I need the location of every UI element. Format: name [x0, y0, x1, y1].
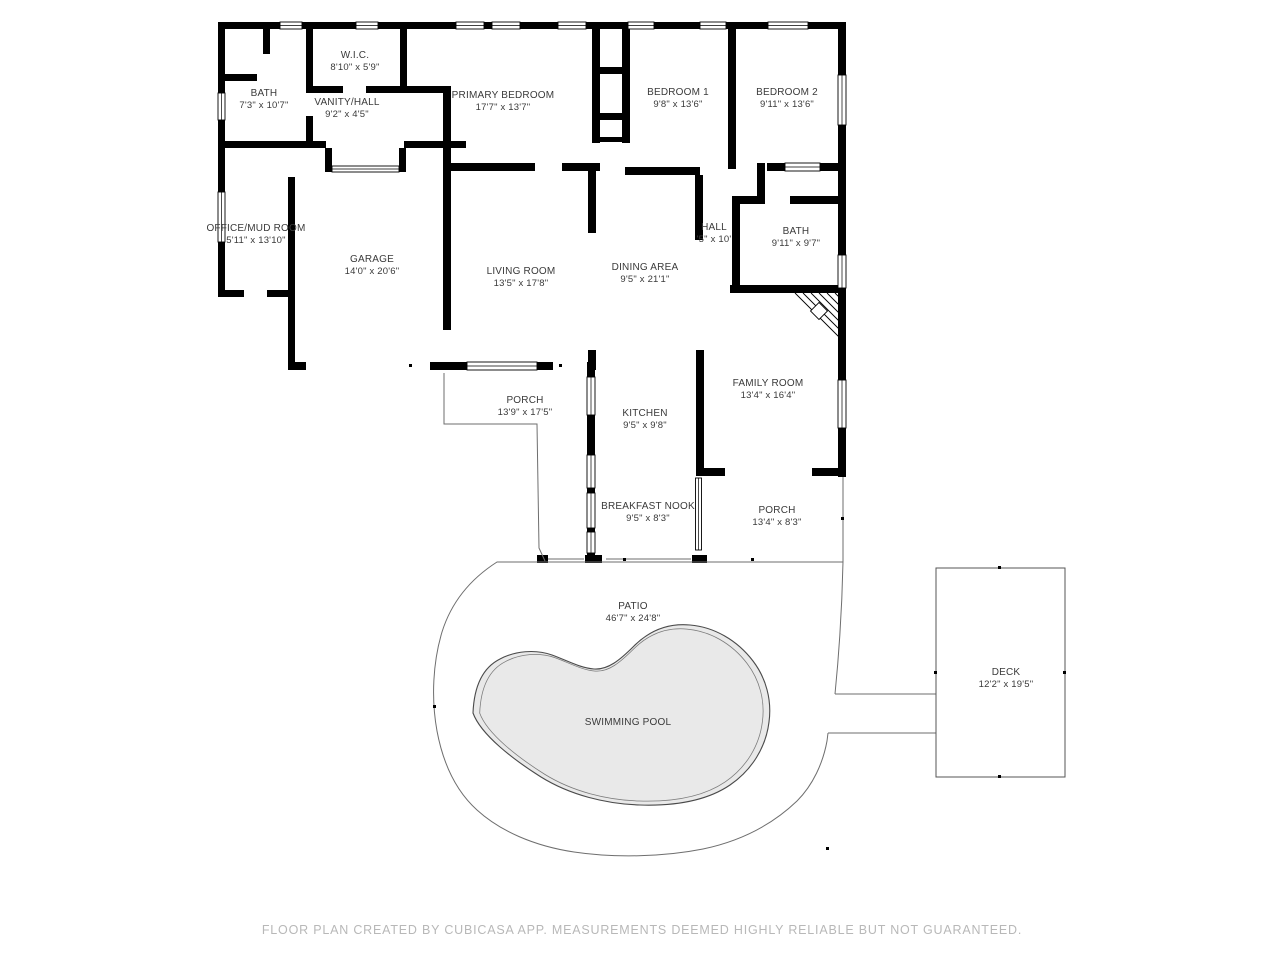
floor-plan-page: BATH7'3" x 10'7"W.I.C.8'10" x 5'9"VANITY…	[0, 0, 1284, 955]
room-label-living-room: LIVING ROOM	[487, 266, 556, 277]
walkway	[828, 694, 936, 733]
room-label-bedroom-1: BEDROOM 1	[647, 87, 709, 98]
floor-plan-drawing: BATH7'3" x 10'7"W.I.C.8'10" x 5'9"VANITY…	[0, 0, 1284, 955]
room-label-bedroom-2: BEDROOM 2	[756, 87, 818, 98]
room-label-breakfast-nook: BREAKFAST NOOK	[601, 501, 695, 512]
room-dims-hall: '5" x 10'	[697, 234, 732, 245]
room-dims-vanity-hall: 9'2" x 4'5"	[325, 109, 369, 120]
room-label-family-room: FAMILY ROOM	[733, 378, 804, 389]
room-label-office-mud-room: OFFICE/MUD ROOM	[206, 223, 305, 234]
room-label-hall: HALL	[701, 222, 727, 233]
room-label-dining-area: DINING AREA	[612, 262, 679, 273]
room-dims-garage: 14'0" x 20'6"	[345, 266, 400, 277]
room-label-bath-1: BATH	[251, 88, 278, 99]
room-dims-bath-1: 7'3" x 10'7"	[239, 100, 288, 111]
room-label-vanity-hall: VANITY/HALL	[314, 97, 380, 108]
room-label-swimming-pool: SWIMMING POOL	[585, 717, 672, 728]
footer-note: FLOOR PLAN CREATED BY CUBICASA APP. MEAS…	[262, 923, 1022, 937]
room-label-porch-2: PORCH	[758, 505, 795, 516]
room-dims-porch-2: 13'4" x 8'3"	[752, 517, 801, 528]
room-label-wic: W.I.C.	[341, 50, 369, 61]
room-dims-family-room: 13'4" x 16'4"	[741, 390, 796, 401]
room-dims-porch-1: 13'9" x 17'5"	[498, 407, 553, 418]
room-dims-kitchen: 9'5" x 9'8"	[623, 420, 667, 431]
room-dims-bedroom-1: 9'8" x 13'6"	[653, 99, 702, 110]
room-dims-breakfast-nook: 9'5" x 8'3"	[626, 513, 670, 524]
swimming-pool-shape	[473, 625, 770, 805]
room-dims-living-room: 13'5" x 17'8"	[494, 278, 549, 289]
room-label-patio: PATIO	[618, 601, 648, 612]
room-label-primary-bedroom: PRIMARY BEDROOM	[452, 90, 555, 101]
room-dims-wic: 8'10" x 5'9"	[330, 62, 379, 73]
room-dims-dining-area: 9'5" x 21'1"	[620, 274, 669, 285]
room-dims-office-mud-room: 5'11" x 13'10"	[226, 235, 285, 246]
room-label-kitchen: KITCHEN	[622, 408, 667, 419]
room-label-bath-2: BATH	[783, 226, 810, 237]
corner-hatch	[795, 293, 845, 343]
room-dims-bedroom-2: 9'11" x 13'6"	[760, 99, 814, 110]
room-dims-deck: 12'2" x 19'5"	[979, 679, 1034, 690]
walls	[218, 22, 846, 563]
room-label-garage: GARAGE	[350, 254, 394, 265]
room-dims-primary-bedroom: 17'7" x 13'7"	[476, 102, 531, 113]
room-dims-bath-2: 9'11" x 9'7"	[772, 238, 821, 249]
room-label-porch-1: PORCH	[506, 395, 543, 406]
room-label-deck: DECK	[992, 667, 1021, 678]
room-dims-patio: 46'7" x 24'8"	[606, 613, 661, 624]
